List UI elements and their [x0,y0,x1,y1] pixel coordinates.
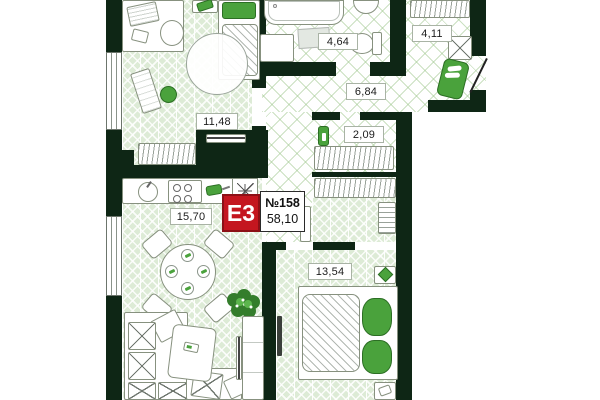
wall [360,112,396,120]
area-value: 4,64 [327,36,349,48]
area-label-room: 11,48 [196,113,238,130]
dining-table [160,244,216,300]
total-area: 58,10 [267,212,298,228]
wall [106,296,122,400]
apartment-type-badge: E3 [222,194,260,232]
wall [262,242,286,250]
wall [470,0,486,56]
wall [106,0,122,52]
bathtub [264,0,344,25]
area-label-entry: 4,11 [412,25,452,42]
wall [370,62,406,76]
wall [312,112,340,120]
tv [206,134,246,143]
round-rug [186,33,248,95]
sofa-cushion [128,322,156,350]
bed-pillow [222,2,256,19]
stove [168,180,202,203]
wardrobe [410,0,470,18]
wall [106,130,122,216]
tv-stand [242,316,264,400]
apartment-number: №158 [265,196,300,212]
remote [183,341,200,353]
area-label-bedroom: 13,54 [308,263,352,280]
floor-plan: 11,48 4,64 4,11 6,84 2,09 [0,0,600,400]
area-label-kitchen: 15,70 [170,208,212,225]
area-value: 13,54 [316,266,345,278]
sofa-cushion [128,382,156,400]
wall [262,250,276,400]
wall [313,242,355,250]
bathroom-cabinet [260,34,294,62]
toilet-tank [372,32,382,55]
tv [236,336,242,380]
storage-box [318,126,329,146]
office-chair [160,20,184,46]
wardrobe-rail [314,178,396,198]
wall [312,172,396,177]
area-value: 4,11 [421,28,442,40]
sofa-cushion [128,352,156,380]
area-value: 2,09 [353,129,375,141]
wall [470,90,486,112]
wall [262,62,336,76]
window [106,216,122,296]
kitchen-sink [138,182,158,202]
apartment-info-badge: №158 58,10 [260,191,305,232]
area-label-bathroom: 4,64 [318,33,358,50]
drying-rack [378,202,396,234]
pouf [160,86,177,103]
area-value: 6,84 [355,86,377,98]
bed-pillow [362,340,392,374]
sofa-cushion [158,382,188,400]
bed-pillow [362,298,392,336]
area-value: 15,70 [177,211,206,223]
area-label-hallway: 6,84 [346,83,386,100]
area-value: 11,48 [203,116,231,128]
coffee-table [167,324,217,383]
hanger-rail [314,146,394,170]
radiator [138,143,196,165]
window [106,52,122,130]
area-label-closet: 2,09 [344,126,384,143]
type-label: E3 [227,200,255,227]
tv [277,316,282,356]
bed-blanket [302,294,360,372]
wall [396,112,412,400]
wall [390,0,406,64]
